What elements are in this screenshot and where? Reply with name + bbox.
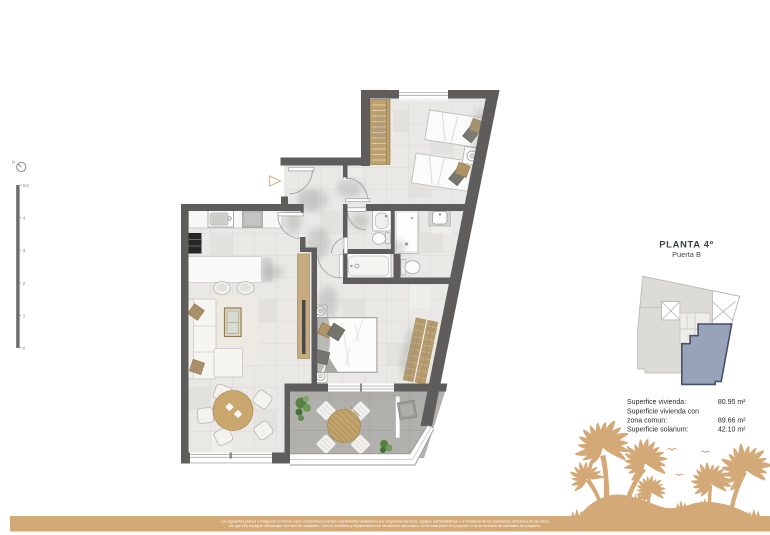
svg-text:1: 1 [23, 313, 26, 318]
svg-text:80.95 m²: 80.95 m² [718, 399, 746, 406]
svg-text:42.10 m²: 42.10 m² [718, 426, 746, 433]
svg-text:4: 4 [23, 216, 26, 221]
svg-text:N: N [12, 160, 15, 165]
svg-text:Superfice vivienda:: Superfice vivienda: [627, 399, 686, 406]
svg-text:Superficie vivienda con: Superficie vivienda con [627, 408, 699, 415]
svg-text:Puerta B: Puerta B [672, 250, 701, 259]
svg-text:Superficie solarium:: Superficie solarium: [627, 426, 689, 433]
svg-text:zona comun:: zona comun: [627, 417, 667, 424]
svg-text:89.66 m²: 89.66 m² [718, 417, 746, 424]
svg-text:3: 3 [23, 248, 26, 253]
svg-text:sin que ello implique menoscab: sin que ello implique menoscabo del nive… [229, 524, 541, 528]
svg-text:Los siguientes planos e imágen: Los siguientes planos e imágenes no tien… [221, 519, 550, 523]
svg-text:5m: 5m [23, 183, 30, 188]
svg-text:2: 2 [23, 281, 26, 286]
svg-text:PLANTA 4º: PLANTA 4º [659, 238, 714, 249]
svg-text:0: 0 [23, 346, 26, 351]
